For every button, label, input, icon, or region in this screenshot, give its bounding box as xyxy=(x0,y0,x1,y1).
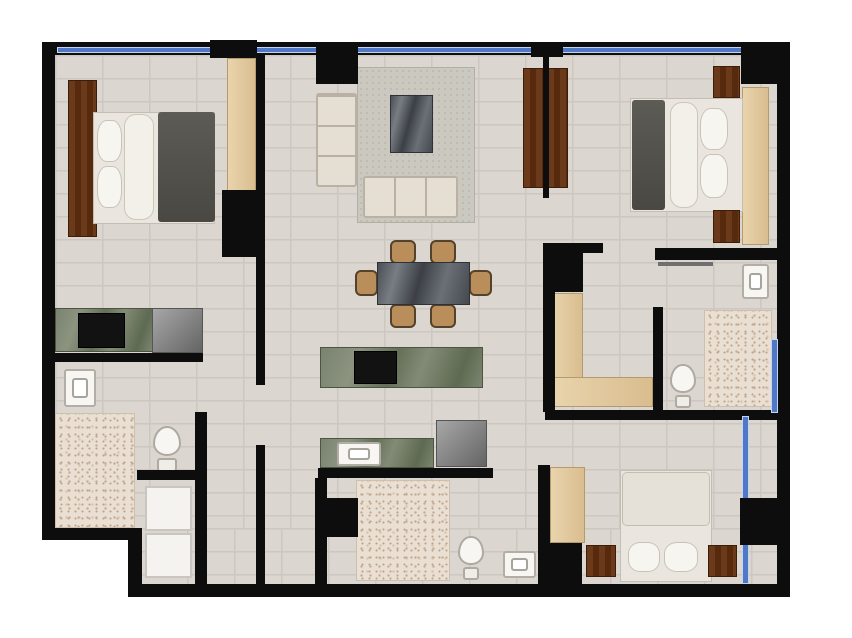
wall-step-horizontal xyxy=(42,528,142,540)
window-top xyxy=(58,48,744,52)
living-coffee-table xyxy=(390,95,433,153)
bathroom2-speckle-floor xyxy=(356,480,450,581)
bedroom2-nightstand-top xyxy=(713,66,740,98)
living-sofa-bottom xyxy=(363,176,458,218)
wall-bedroom1-upper xyxy=(256,55,265,385)
wall-laundry-vertical xyxy=(195,412,207,584)
pillar-bedroom3-closet xyxy=(548,543,582,584)
bathroom1-sink xyxy=(64,369,96,407)
bedroom2-headboard xyxy=(742,87,769,245)
bedroom3-nightstand-right xyxy=(708,545,737,577)
living-sofa-left xyxy=(316,93,357,187)
bathroom3-toilet xyxy=(668,364,698,408)
bathroom3-sink xyxy=(742,264,769,299)
kitchenette-cooktop xyxy=(78,313,125,348)
bedroom1-wardrobe xyxy=(227,58,256,191)
bathroom3-speckle-floor xyxy=(704,310,772,407)
bedroom2-bolster xyxy=(670,102,698,208)
bathroom1-speckle-floor xyxy=(55,413,135,528)
pillar-bathroom2 xyxy=(327,498,358,537)
pillar-bedroom1 xyxy=(222,190,257,257)
kitchen-sink xyxy=(337,442,381,466)
window-bathroom3 xyxy=(772,340,777,412)
pillar-top-bedroom2 xyxy=(741,42,783,84)
pillar-bedroom3 xyxy=(740,498,780,545)
bedroom3-pillow-2 xyxy=(664,542,698,572)
wall-laundry-horizontal xyxy=(137,470,207,480)
wall-bedroom2-bottom xyxy=(655,248,777,260)
bedroom3-nightstand-left xyxy=(586,545,616,577)
kitchen-fridge xyxy=(436,420,487,467)
bedroom3-pillow-1 xyxy=(628,542,660,572)
bedroom1-blanket xyxy=(158,112,215,222)
wall-kitchen-edge xyxy=(318,468,493,478)
bedroom2-blanket xyxy=(632,100,665,210)
wall-bedroom1-lower xyxy=(256,445,265,584)
pillar-top-living xyxy=(316,42,358,84)
bedroom3-duvet xyxy=(622,472,710,526)
dining-chair-right xyxy=(469,270,492,296)
bedroom1-bolster xyxy=(124,114,154,220)
bathroom2-toilet xyxy=(456,536,486,580)
bathroom2-sink xyxy=(503,551,536,578)
dining-chair-top-left xyxy=(390,240,416,264)
wall-tv-stem xyxy=(543,47,549,198)
dining-chair-bottom-right xyxy=(430,304,456,328)
kitchenette-fridge xyxy=(152,308,203,353)
wall-kitchenette-edge xyxy=(55,353,203,362)
bedroom2-nightstand-bottom xyxy=(713,210,740,243)
door-leaf-bathroom3 xyxy=(658,262,713,266)
kitchen-island xyxy=(320,347,483,388)
bedroom2-pillow-2 xyxy=(700,154,728,198)
laundry-dryer xyxy=(145,533,192,578)
bedroom1-pillow-2 xyxy=(97,166,122,208)
kitchen-island-cooktop xyxy=(354,351,397,384)
bedroom2-pillow-1 xyxy=(700,108,728,150)
dining-table xyxy=(377,262,470,305)
bathroom1-toilet xyxy=(150,426,184,472)
wall-exterior-left xyxy=(42,42,55,540)
wall-tv-cap xyxy=(531,45,563,57)
dining-chair-bottom-left xyxy=(390,304,416,328)
wall-closet-right xyxy=(653,307,663,417)
wall-exterior-bottom xyxy=(128,584,790,597)
dining-chair-left xyxy=(355,270,378,296)
laundry-washer xyxy=(145,486,192,531)
dining-chair-top-right xyxy=(430,240,456,264)
bedroom1-pillow-1 xyxy=(97,120,122,162)
wall-closet-top xyxy=(543,243,603,253)
bedroom3-closet xyxy=(550,467,585,543)
floor-plan-canvas xyxy=(0,0,852,638)
wall-bathroom2-left xyxy=(315,478,327,584)
wall-top-thick-segment xyxy=(210,40,257,58)
wall-step-vertical xyxy=(128,528,142,597)
walkin-closet-horizontal xyxy=(550,377,653,407)
